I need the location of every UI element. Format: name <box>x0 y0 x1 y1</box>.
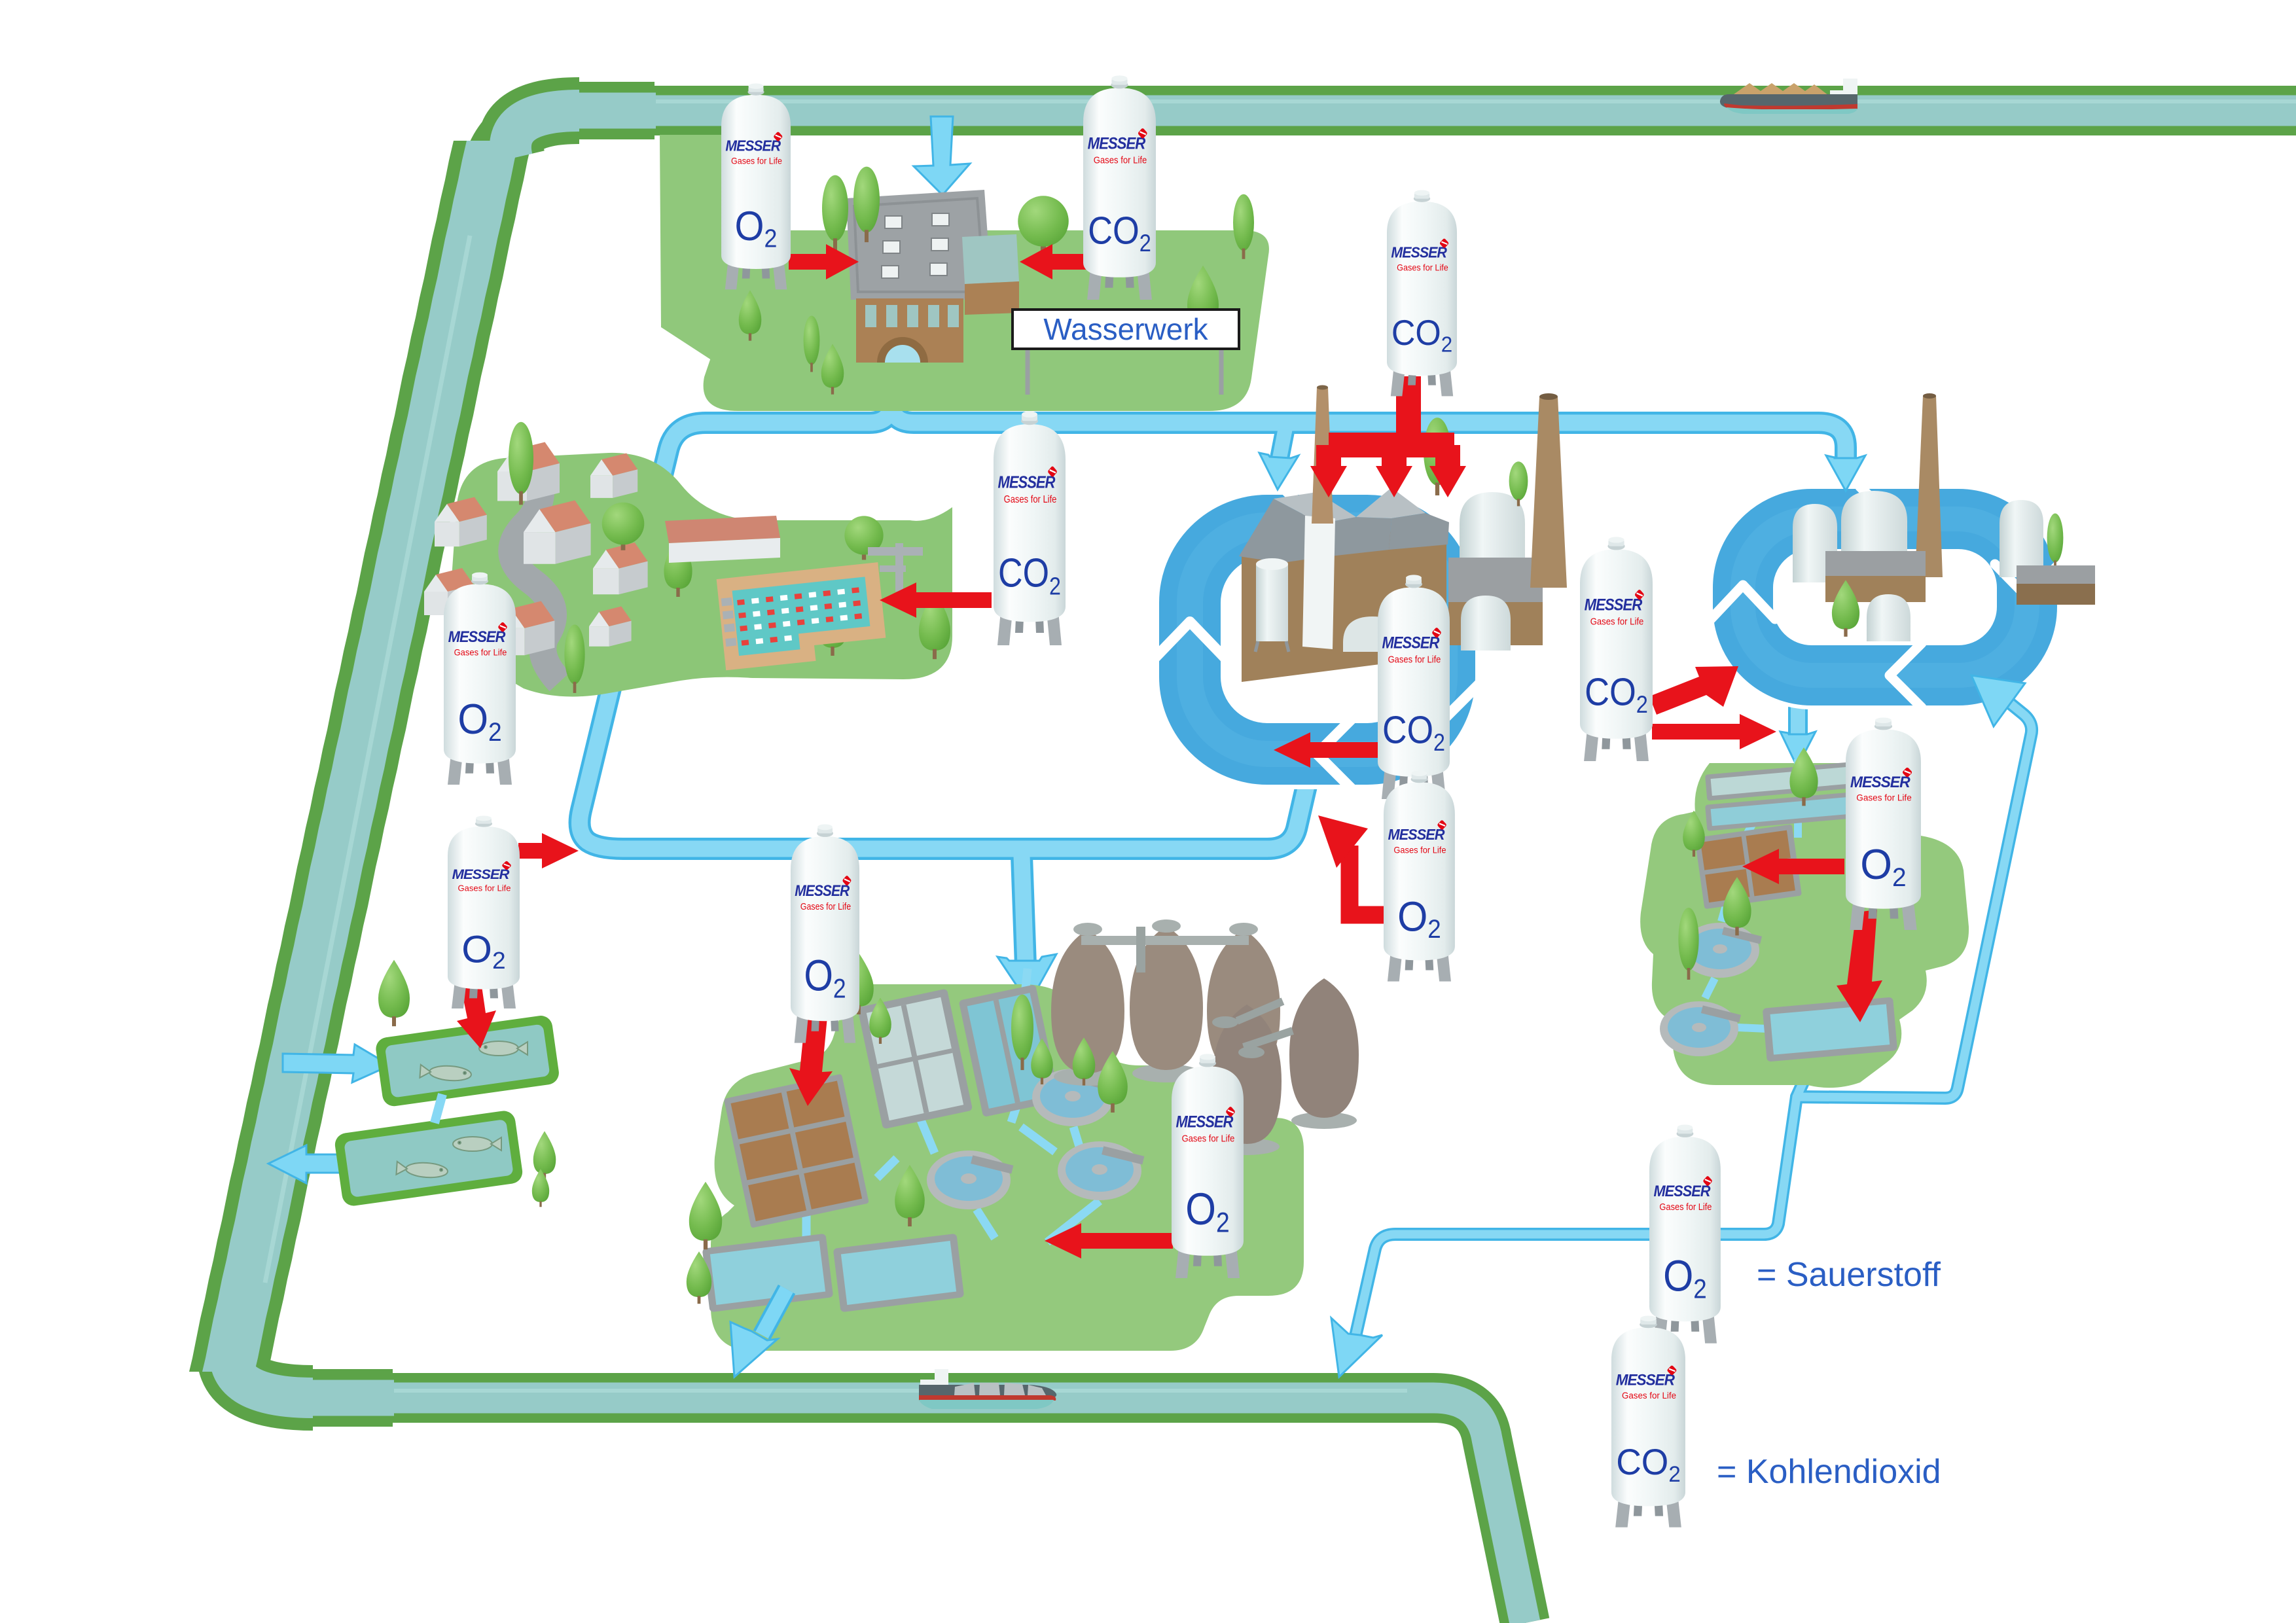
svg-text:Wasserwerk: Wasserwerk <box>1043 312 1208 346</box>
svg-text:= Kohlendioxid: = Kohlendioxid <box>1717 1453 1941 1491</box>
svg-text:= Sauerstoff: = Sauerstoff <box>1757 1256 1941 1294</box>
